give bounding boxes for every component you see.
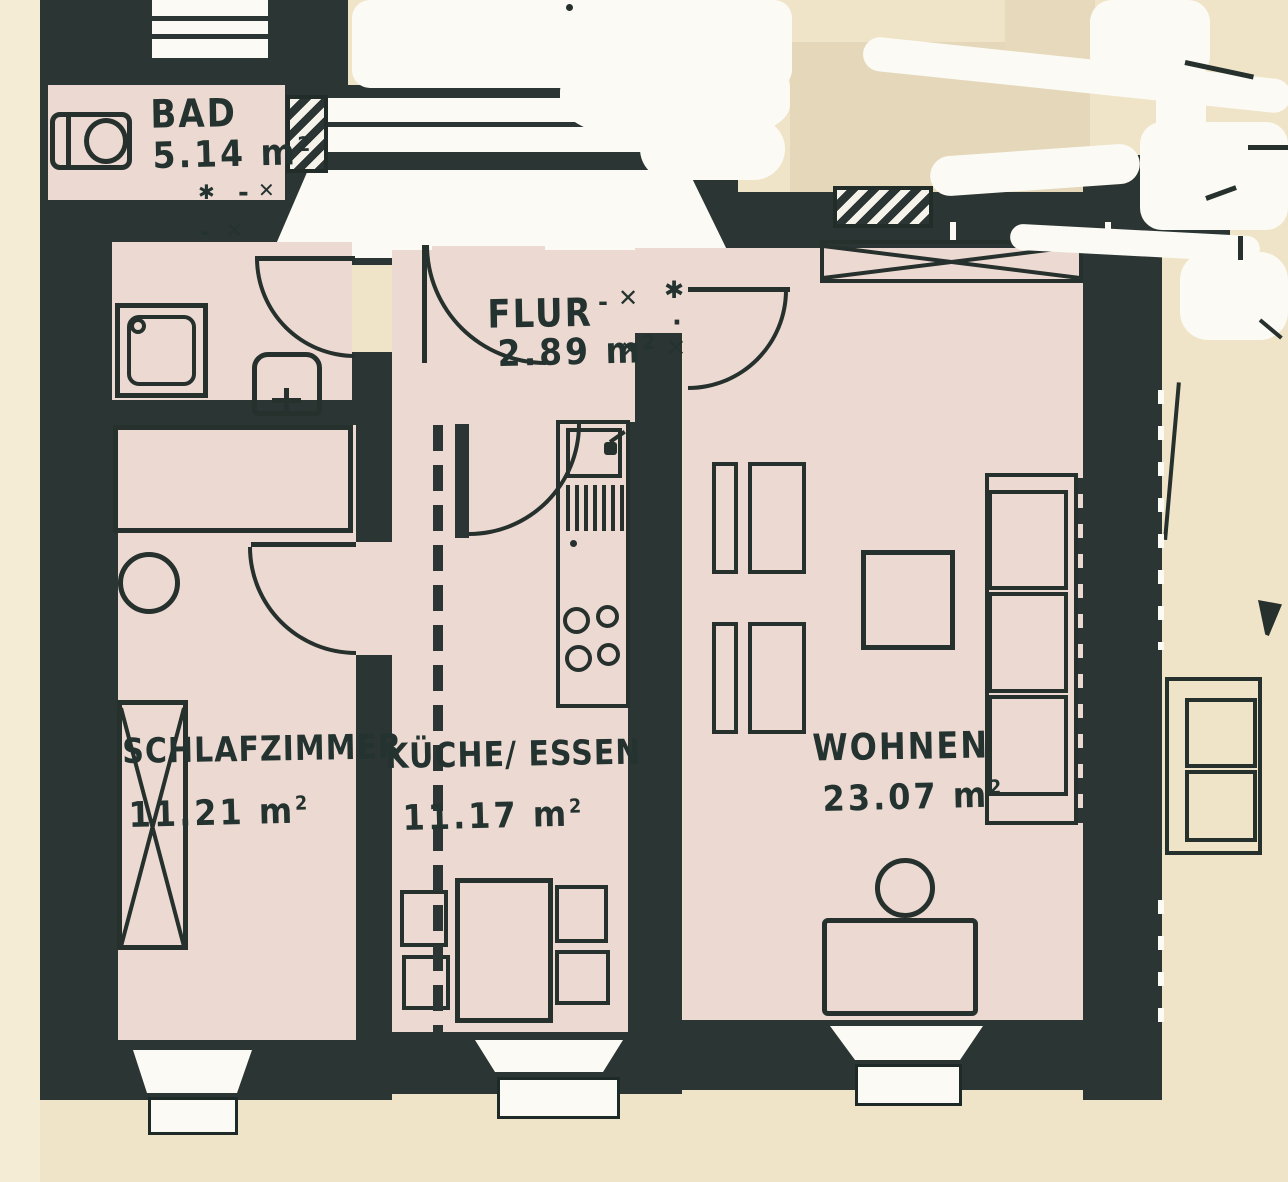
wall-bad-mid-band <box>47 198 285 242</box>
dish-drainer-l4 <box>593 485 597 531</box>
washbasin-tap-h <box>272 398 301 403</box>
wall-bedroom-kitchen-top <box>356 422 392 542</box>
wall-slit-1 <box>950 222 956 242</box>
sofa-cushion-2 <box>988 592 1068 693</box>
kitchen-door-jamb <box>455 424 469 538</box>
window-bedroom-trapezoid <box>133 1050 253 1094</box>
mark-cross-5: ✕ <box>666 334 686 362</box>
hatch-wall-wohnen <box>833 186 933 228</box>
mark-dash-3: - <box>598 288 608 316</box>
label-kueche: KÜCHE/ ESSEN <box>385 733 642 778</box>
counter-dot <box>570 540 577 547</box>
window-kitchen-sill <box>497 1077 620 1119</box>
area-bad: 5.14 m2 <box>152 130 314 177</box>
page-left-margin <box>0 0 40 1182</box>
area-schlafzimmer: 11.21 m2 <box>128 789 311 836</box>
dish-drainer-l3 <box>584 485 588 531</box>
burner-1 <box>563 607 590 634</box>
area-kueche: 11.17 m2 <box>402 792 585 839</box>
label-bad: BAD <box>150 90 237 138</box>
wall-bedroom-kitchen-bottom <box>356 655 392 1048</box>
stair-window-tread-2 <box>152 34 268 39</box>
removed-wall-dashed-line <box>433 425 443 1035</box>
mark-star-1: ✱ <box>198 180 215 204</box>
mark-cross-3: ✕ <box>618 284 638 312</box>
bedroom-door-gap <box>356 542 392 655</box>
area-flur: 2.89 m2 <box>497 328 659 375</box>
dish-drainer-l1 <box>566 485 570 531</box>
wall-east <box>1083 155 1162 1100</box>
neighbor-door-line <box>1163 382 1181 540</box>
stray-line-2 <box>1248 145 1288 150</box>
bedroom-round-chair <box>118 552 180 614</box>
stray-dot-1 <box>1238 236 1243 260</box>
stair-window <box>152 0 268 58</box>
toilet-bowl <box>84 118 128 164</box>
label-schlafzimmer: SCHLAFZIMMER <box>122 727 402 772</box>
mark-star-2: ✱ <box>664 276 684 304</box>
stair-window-tread-1 <box>152 16 268 21</box>
stray-dot-2 <box>566 4 573 11</box>
desk-chair <box>875 858 935 918</box>
burner-2 <box>596 605 619 628</box>
dish-drainer-l6 <box>611 485 615 531</box>
window-bedroom-sill <box>148 1097 238 1135</box>
sofa-cushion-1 <box>988 490 1068 590</box>
window-kitchen-trapezoid <box>475 1040 623 1073</box>
burner-4 <box>597 643 620 666</box>
mark-dash-2: - <box>200 218 210 246</box>
toilet-divider <box>66 112 71 170</box>
mark-cross-1: ✕ <box>258 178 275 202</box>
mark-dot-1: · <box>672 308 682 338</box>
armchair-slim-1 <box>712 462 738 574</box>
neighbor-sofa-cushion-2 <box>1185 770 1257 842</box>
erasure-blob-7 <box>1156 0 1206 160</box>
label-wohnen: WOHNEN <box>812 723 989 770</box>
coffee-table <box>861 550 955 650</box>
erasure-blob-3 <box>640 118 785 180</box>
dining-table <box>455 878 553 1023</box>
window-wohnen-sill <box>855 1064 962 1106</box>
dish-drainer-l7 <box>620 485 624 531</box>
burner-3 <box>565 645 592 672</box>
dining-chair-4 <box>555 950 610 1005</box>
armchair-slim-2 <box>712 622 738 734</box>
dining-chair-3 <box>555 885 608 943</box>
wall-flur-wohnen-column <box>628 333 682 1048</box>
sofa-wall-dashed <box>1078 478 1083 823</box>
mark-dash-1: - <box>238 178 249 208</box>
dish-drainer-l5 <box>602 485 606 531</box>
bed <box>113 425 353 533</box>
mark-cross-2: ✕ <box>226 218 243 242</box>
desk <box>822 918 978 1016</box>
east-wall-white-dashes-1 <box>1158 390 1164 650</box>
armchair-wide-1 <box>748 462 806 574</box>
shower-drain <box>130 318 146 334</box>
neighbor-sofa-cushion-1 <box>1185 698 1257 768</box>
floorplan-scan-page: { "document": { "type": "scanned archite… <box>0 0 1288 1182</box>
window-wohnen-trapezoid <box>830 1026 983 1061</box>
area-wohnen: 23.07 m2 <box>822 773 1005 820</box>
neighbor-door-triangle <box>1258 600 1282 636</box>
armchair-wide-2 <box>748 622 806 734</box>
dish-drainer-l2 <box>575 485 579 531</box>
east-wall-white-dashes-2 <box>1158 900 1164 1040</box>
